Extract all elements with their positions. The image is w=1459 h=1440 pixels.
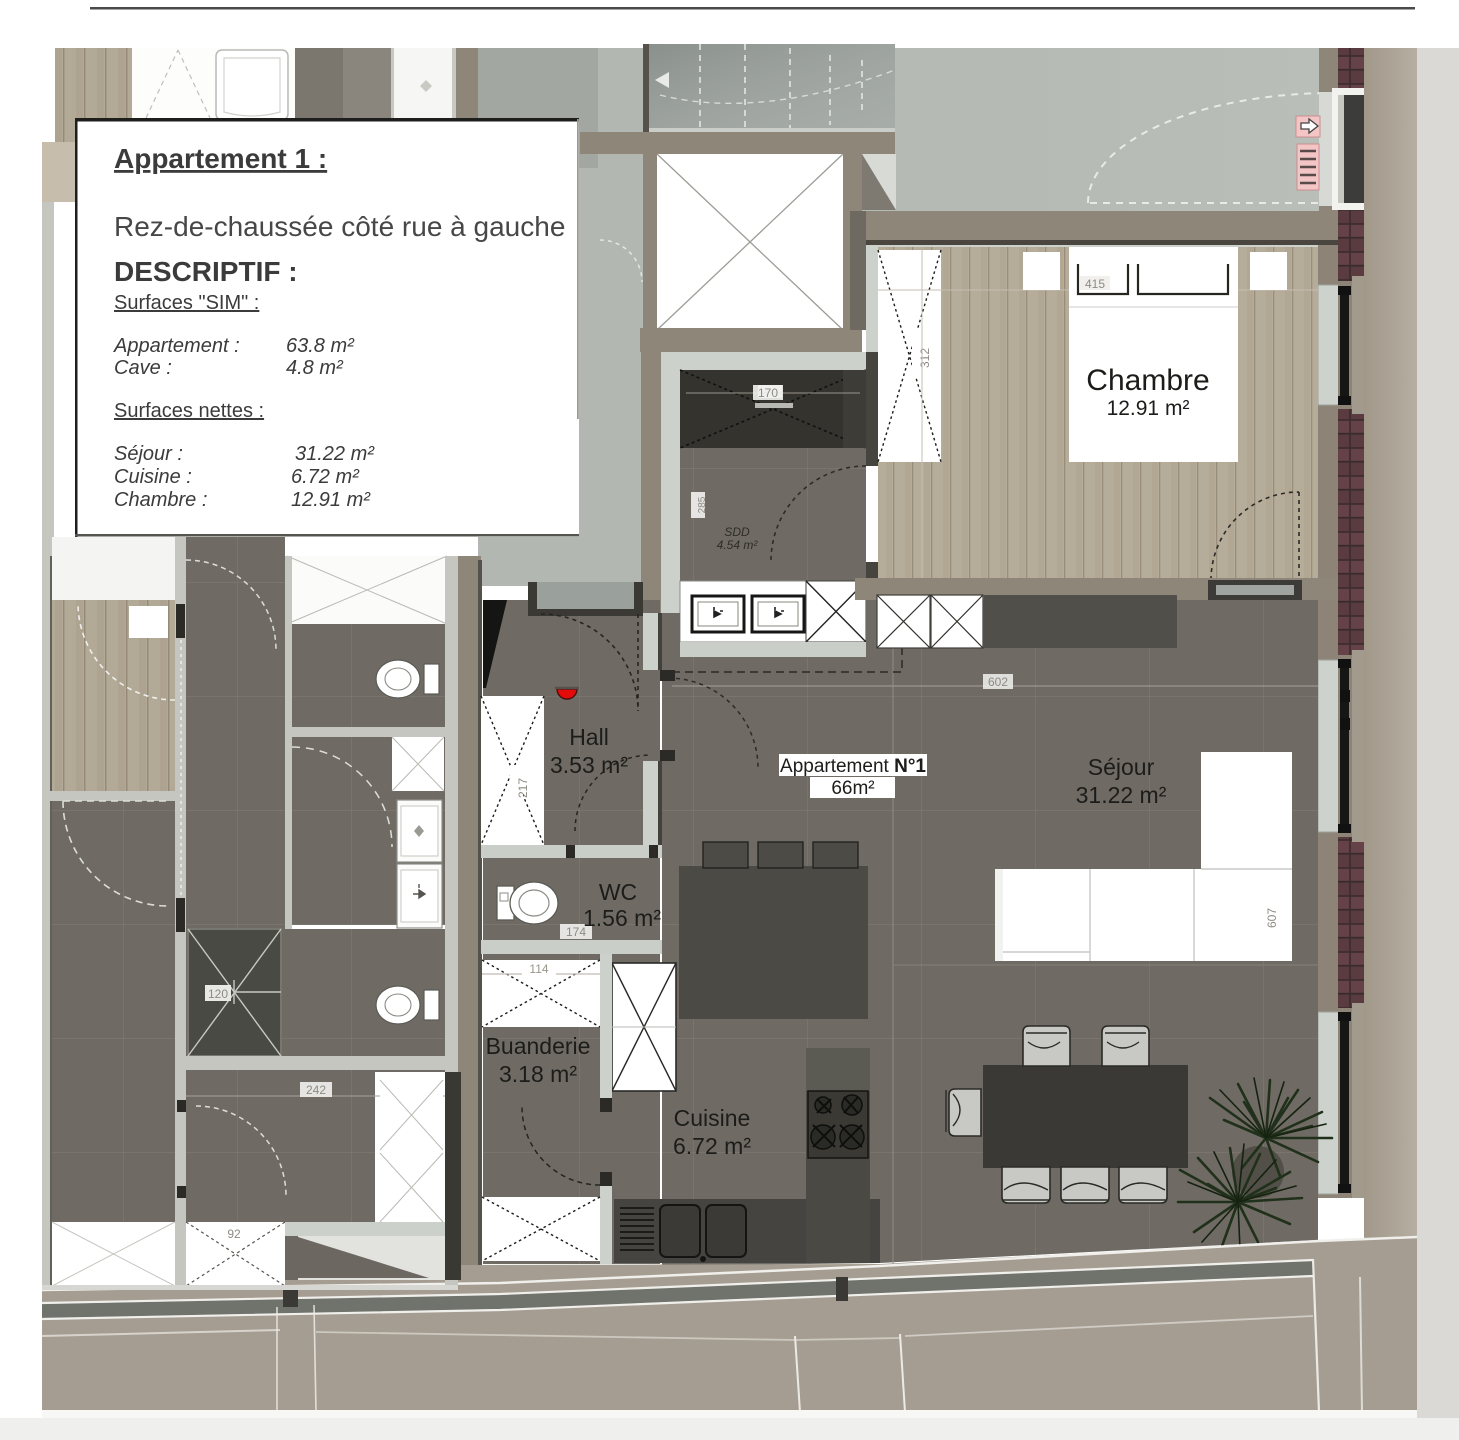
- svg-text:4.8 m²: 4.8 m²: [286, 357, 344, 379]
- svg-text:Chambre: Chambre: [1086, 364, 1209, 397]
- svg-text:Séjour :: Séjour :: [114, 443, 183, 465]
- svg-text:Hall: Hall: [569, 724, 609, 750]
- svg-text:602: 602: [988, 675, 1008, 689]
- svg-text:1.56 m²: 1.56 m²: [583, 905, 661, 931]
- svg-text:3.53 m²: 3.53 m²: [550, 752, 628, 778]
- svg-text:Appartement N°1: Appartement N°1: [780, 756, 926, 777]
- svg-text:6.72 m²: 6.72 m²: [673, 1133, 751, 1159]
- svg-text:Chambre :: Chambre :: [114, 489, 207, 511]
- svg-text:DESCRIPTIF :: DESCRIPTIF :: [114, 256, 298, 287]
- svg-text:63.8 m²: 63.8 m²: [286, 335, 355, 357]
- svg-text:4.54 m²: 4.54 m²: [717, 538, 759, 552]
- svg-text:Rez-de-chaussée côté rue à gau: Rez-de-chaussée côté rue à gauche: [114, 211, 565, 242]
- svg-text:Appartement :: Appartement :: [113, 335, 240, 357]
- svg-text:607: 607: [1265, 908, 1279, 928]
- svg-text:285: 285: [697, 496, 708, 513]
- svg-text:Buanderie: Buanderie: [486, 1033, 591, 1059]
- svg-text:SDD: SDD: [724, 525, 750, 539]
- svg-text:Cuisine: Cuisine: [674, 1105, 751, 1131]
- svg-text:Surfaces nettes :: Surfaces nettes :: [114, 400, 264, 422]
- svg-text:114: 114: [529, 962, 548, 976]
- svg-text:92: 92: [227, 1227, 241, 1241]
- svg-text:WC: WC: [599, 879, 637, 905]
- svg-text:31.22 m²: 31.22 m²: [1076, 782, 1167, 808]
- svg-text:Séjour: Séjour: [1088, 754, 1155, 780]
- svg-text:3.18 m²: 3.18 m²: [499, 1061, 577, 1087]
- svg-text:Surfaces "SIM" :: Surfaces "SIM" :: [114, 292, 259, 314]
- svg-text:Appartement 1 :: Appartement 1 :: [114, 143, 327, 174]
- svg-text:66m²: 66m²: [831, 778, 874, 799]
- svg-text:217: 217: [516, 778, 530, 798]
- svg-text:415: 415: [1085, 277, 1105, 291]
- svg-text:6.72 m²: 6.72 m²: [291, 466, 360, 488]
- svg-text:Cave :: Cave :: [114, 357, 172, 379]
- svg-text:242: 242: [306, 1083, 326, 1097]
- svg-text:Cuisine :: Cuisine :: [114, 466, 192, 488]
- svg-text:170: 170: [758, 386, 778, 400]
- svg-text:12.91 m²: 12.91 m²: [291, 489, 371, 511]
- svg-text:31.22 m²: 31.22 m²: [295, 443, 375, 465]
- svg-text:312: 312: [918, 348, 932, 368]
- svg-text:120: 120: [208, 987, 228, 1001]
- svg-text:12.91 m²: 12.91 m²: [1107, 397, 1190, 420]
